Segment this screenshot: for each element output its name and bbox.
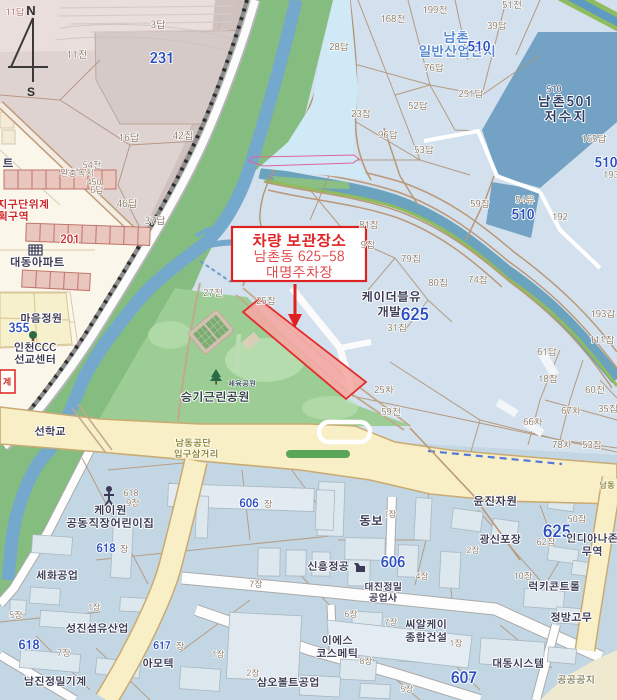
svg-text:S: S: [27, 85, 35, 99]
svg-text:N: N: [26, 3, 35, 18]
